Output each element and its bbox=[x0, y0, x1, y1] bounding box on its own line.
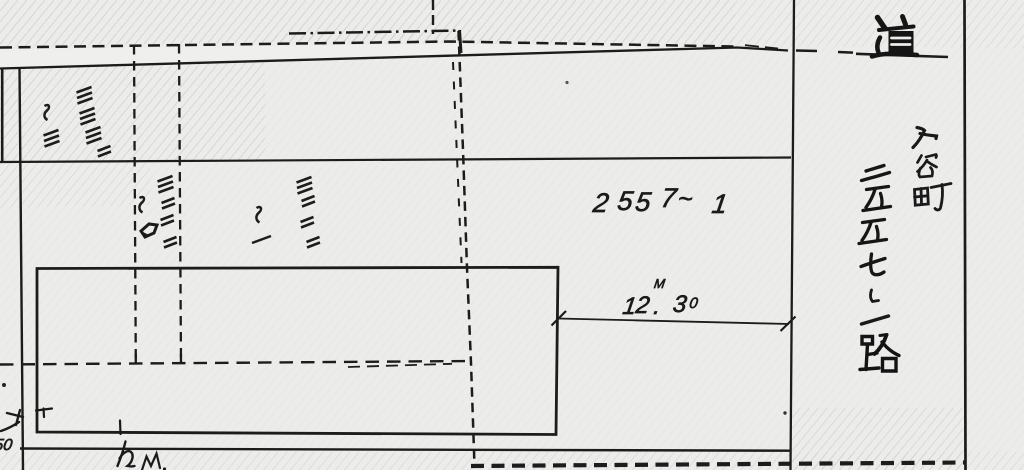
svg-text:M: M bbox=[653, 276, 666, 291]
